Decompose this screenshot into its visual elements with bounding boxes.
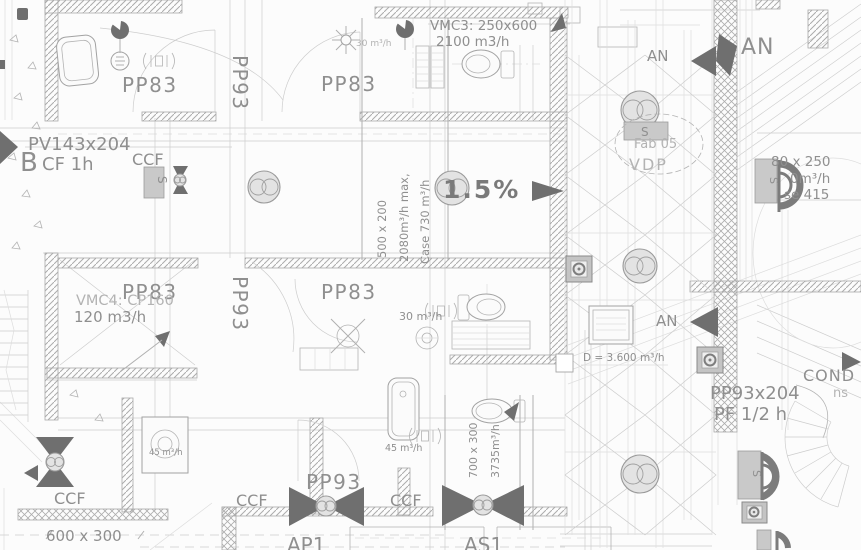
label-grille-flow: 0m³/h (790, 171, 830, 187)
label-ccf: CCF (132, 150, 164, 169)
label-duct-case-flow: Case 730 m³/h (418, 180, 432, 264)
label-flow-45: 45 m³/h (385, 443, 422, 454)
washing-machine-symbol (142, 417, 188, 473)
label-vmc4-flow: 120 m3/h (74, 308, 146, 326)
bathtub-symbol (388, 378, 419, 440)
label-door-pp93x204: PP93x204 (710, 383, 800, 404)
label-duct-size: 500 x 200 (375, 200, 389, 258)
label-s-marker: S (750, 470, 763, 477)
label-fire-rating-pf: PF 1/2 h (714, 404, 787, 425)
floor-plan-canvas: PP83 PP83 PP83 PP83 PP93 PP93 PP93 PV143… (0, 0, 861, 550)
label-vmc3-size: VMC3: 250x600 (430, 18, 537, 34)
label-dim-600x300: 600 x 300 (46, 527, 122, 545)
label-ns: ns (833, 386, 848, 401)
label-door-pv143x204: PV143x204 (28, 134, 131, 155)
label-duct-max-flow: 2080m³/h max, (397, 173, 411, 262)
label-room-pp93: PP93 (228, 276, 252, 332)
hvac-floor-plan: PP83 PP83 PP83 PP83 PP93 PP93 PP93 PV143… (0, 0, 861, 550)
label-duct-700x300: 700 x 300 (467, 423, 480, 479)
label-ap1: AP1 (287, 533, 325, 550)
label-room-pp93: PP93 (306, 470, 362, 494)
label-grille-size: 80 x 250 (771, 154, 831, 170)
label-an: AN (741, 35, 775, 60)
label-room-pp83: PP83 (321, 72, 377, 96)
label-an: AN (656, 312, 677, 330)
label-d3600: D = 3.600 m³/h (583, 352, 665, 364)
label-slope: 1.5% (443, 175, 520, 204)
label-duct-3735: 3735m³/h (489, 424, 502, 478)
label-fab05: Fab 05 (634, 137, 677, 152)
label-fire-rating-cf1h: CF 1h (42, 154, 94, 175)
label-cond: COND (803, 366, 855, 385)
label-flow-30: 30 m³/h (356, 39, 391, 49)
label-room-pp83: PP83 (321, 280, 377, 304)
label-flow-30: 30 m³/h (399, 310, 442, 323)
label-room-pp83: PP83 (122, 73, 178, 97)
label-ccf: CCF (390, 491, 422, 510)
label-vmc4-ref: VMC4: CP160 (76, 293, 174, 309)
label-s-marker: S (767, 177, 780, 184)
label-s-marker: S (641, 125, 649, 139)
label-flow-45: 45 m³/h (149, 448, 182, 458)
label-s-marker: S (155, 176, 169, 184)
label-room-pp93: PP93 (228, 55, 252, 111)
label-grille-ref: se 415 (784, 187, 829, 203)
label-vdp: VDP (629, 155, 668, 174)
label-ccf: CCF (236, 491, 268, 510)
bathtub-symbol (56, 34, 100, 87)
label-vmc3-flow: 2100 m3/h (436, 34, 510, 50)
label-section-b: B (20, 148, 38, 178)
label-as1: AS1 (464, 533, 503, 550)
label-ccf: CCF (54, 489, 86, 508)
label-an: AN (647, 47, 668, 65)
